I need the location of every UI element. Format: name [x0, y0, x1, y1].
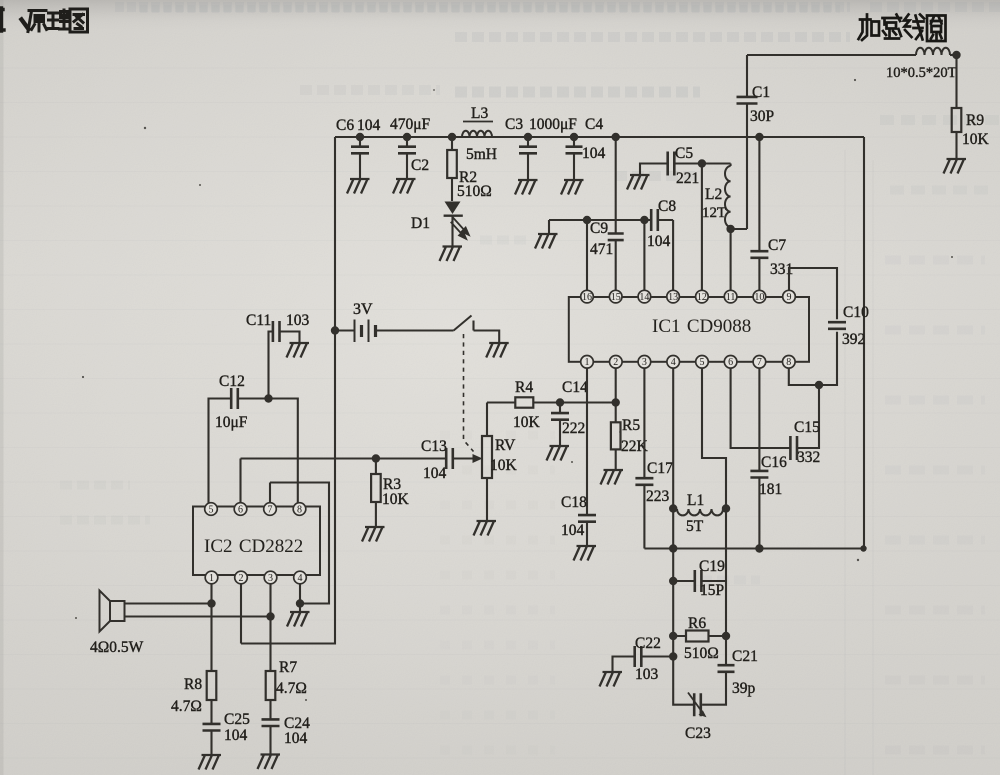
svg-text:4: 4 [671, 357, 676, 368]
svg-text:7: 7 [268, 504, 273, 515]
svg-text:4: 4 [298, 573, 303, 584]
svg-text:10K: 10K [490, 457, 518, 474]
svg-text:11: 11 [726, 292, 736, 303]
svg-text:1000μF: 1000μF [529, 116, 577, 133]
svg-text:470μF: 470μF [390, 116, 431, 133]
svg-text:C7: C7 [768, 237, 786, 254]
svg-text:5T: 5T [686, 518, 704, 535]
svg-text:8: 8 [786, 357, 791, 368]
svg-text:10K: 10K [962, 131, 990, 148]
svg-text:C15: C15 [794, 419, 820, 436]
svg-text:9: 9 [787, 292, 792, 303]
svg-text:R7: R7 [279, 659, 297, 676]
svg-text:C18: C18 [561, 494, 587, 511]
svg-text:104: 104 [647, 233, 671, 250]
svg-text:5: 5 [700, 357, 705, 368]
svg-text:C17: C17 [647, 460, 673, 477]
svg-text:L1: L1 [687, 492, 704, 509]
svg-text:104: 104 [224, 727, 248, 744]
svg-text:6: 6 [238, 504, 243, 515]
svg-text:C8: C8 [658, 198, 676, 215]
svg-text:8: 8 [297, 504, 302, 515]
svg-text:4.7Ω: 4.7Ω [276, 680, 307, 697]
svg-text:104: 104 [284, 730, 308, 747]
svg-text:C23: C23 [685, 725, 711, 742]
svg-text:332: 332 [797, 449, 820, 466]
svg-text:C22: C22 [635, 635, 661, 652]
svg-text:4.7Ω: 4.7Ω [171, 698, 202, 715]
svg-text:392: 392 [842, 331, 865, 348]
svg-text:C5: C5 [675, 145, 693, 162]
svg-text:5: 5 [209, 504, 214, 515]
svg-text:12T: 12T [702, 205, 726, 221]
svg-text:C13: C13 [421, 438, 447, 455]
svg-text:C4: C4 [585, 116, 603, 133]
svg-text:C6: C6 [336, 117, 354, 134]
svg-text:181: 181 [759, 481, 782, 498]
svg-text:C21: C21 [732, 648, 758, 665]
svg-text:510Ω: 510Ω [684, 645, 719, 662]
svg-text:6: 6 [728, 357, 733, 368]
svg-text:R9: R9 [966, 112, 984, 129]
svg-text:C12: C12 [219, 373, 245, 390]
svg-text:12: 12 [697, 292, 707, 303]
svg-text:C11: C11 [246, 312, 271, 329]
svg-text:104: 104 [561, 522, 585, 539]
svg-text:C16: C16 [761, 454, 787, 471]
svg-text:223: 223 [646, 488, 670, 505]
svg-text:104: 104 [357, 117, 381, 134]
svg-text:3: 3 [268, 573, 273, 584]
svg-text:R5: R5 [622, 417, 640, 434]
svg-text:15: 15 [611, 292, 621, 303]
svg-text:103: 103 [286, 312, 310, 329]
svg-text:10K: 10K [382, 491, 410, 508]
svg-text:C3: C3 [505, 116, 523, 133]
svg-text:16: 16 [582, 292, 592, 303]
svg-text:15P: 15P [700, 582, 724, 599]
svg-text:C1: C1 [752, 84, 770, 101]
svg-text:471: 471 [590, 241, 613, 258]
svg-text:IC2 CD2822: IC2 CD2822 [204, 536, 303, 557]
svg-text:39p: 39p [732, 680, 756, 697]
svg-text:4Ω0.5W: 4Ω0.5W [90, 639, 144, 656]
svg-text:104: 104 [582, 145, 606, 162]
svg-text:14: 14 [639, 292, 649, 303]
svg-text:10K: 10K [513, 414, 541, 431]
svg-text:1: 1 [585, 357, 590, 368]
svg-text:R8: R8 [184, 676, 202, 693]
svg-text:7: 7 [757, 357, 762, 368]
svg-text:10*0.5*20T: 10*0.5*20T [886, 65, 957, 81]
svg-text:C14: C14 [562, 379, 588, 396]
svg-text:C10: C10 [843, 304, 869, 321]
svg-text:C19: C19 [699, 558, 725, 575]
svg-text:C2: C2 [411, 157, 429, 174]
svg-text:104: 104 [423, 465, 447, 482]
svg-text:103: 103 [635, 666, 659, 683]
svg-text:5mH: 5mH [466, 146, 497, 163]
svg-text:C9: C9 [590, 220, 608, 237]
svg-text:C25: C25 [224, 711, 250, 728]
svg-text:R4: R4 [515, 379, 533, 396]
svg-text:L3: L3 [471, 105, 488, 122]
svg-text:222: 222 [562, 420, 585, 437]
svg-text:D1: D1 [411, 215, 430, 232]
svg-text:L2: L2 [705, 186, 722, 203]
svg-text:2: 2 [613, 357, 618, 368]
svg-text:221: 221 [676, 170, 699, 187]
svg-text:10μF: 10μF [215, 414, 248, 431]
svg-text:13: 13 [668, 292, 678, 303]
svg-text:30P: 30P [750, 108, 774, 125]
svg-text:510Ω: 510Ω [457, 183, 492, 200]
svg-text:3: 3 [642, 357, 647, 368]
svg-text:R6: R6 [688, 615, 706, 632]
svg-text:RV: RV [495, 437, 516, 454]
svg-text:3V: 3V [353, 301, 373, 318]
svg-text:2: 2 [239, 573, 244, 584]
svg-text:10: 10 [754, 292, 764, 303]
svg-text:IC1 CD9088: IC1 CD9088 [652, 316, 751, 337]
svg-text:1: 1 [209, 573, 214, 584]
